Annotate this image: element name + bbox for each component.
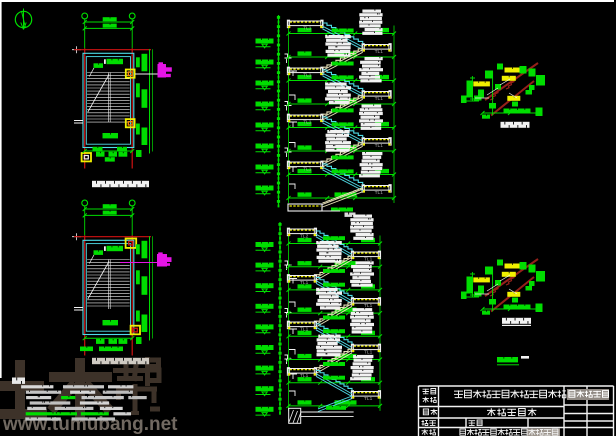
svg-text:TL1: TL1 — [375, 143, 384, 149]
svg-text:TL1: TL1 — [375, 190, 384, 196]
svg-text:TL1: TL1 — [300, 280, 309, 286]
svg-text:www.tumubang.net: www.tumubang.net — [2, 414, 178, 435]
svg-text:TL1: TL1 — [364, 350, 373, 356]
svg-text:TL1: TL1 — [300, 373, 309, 379]
svg-text:TL2: TL2 — [300, 234, 309, 240]
svg-text:TL1: TL1 — [303, 73, 312, 79]
svg-text:TL1: TL1 — [303, 26, 312, 32]
svg-text:TL1: TL1 — [303, 167, 312, 173]
svg-text:TL1: TL1 — [375, 49, 384, 55]
svg-text:TL1: TL1 — [303, 120, 312, 126]
svg-text:TL1: TL1 — [375, 96, 384, 102]
svg-text:TL1: TL1 — [364, 396, 373, 402]
svg-text:TL1: TL1 — [300, 327, 309, 333]
